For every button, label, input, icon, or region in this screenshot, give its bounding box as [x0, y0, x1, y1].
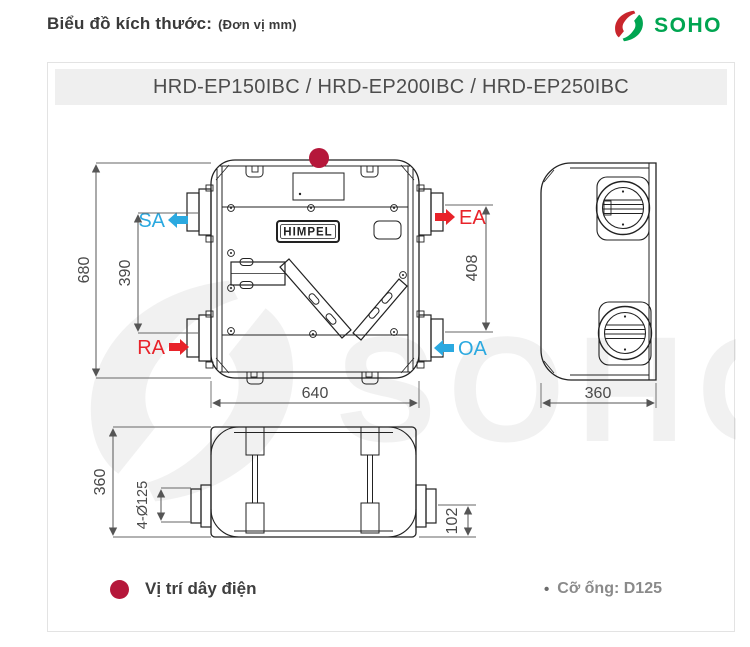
dim-depth-side-label: 360: [585, 385, 612, 402]
page-title-unit: (Đơn vị mm): [218, 17, 297, 32]
drawing-panel: HRD-EP150IBC / HRD-EP200IBC / HRD-EP250I…: [47, 62, 735, 632]
dim-bottom-offset-102: 102: [419, 505, 476, 537]
ra-arrow-icon: [169, 339, 189, 355]
legend-pipe: • Cỡ ống: D125: [544, 580, 662, 598]
dimension-sheet: { "page": { "title": "Biểu đồ kích thước…: [0, 0, 750, 647]
technical-drawing: HIMPEL SA EA RA OA: [48, 103, 736, 633]
front-view: HIMPEL: [187, 160, 443, 384]
duct-ra: [187, 311, 213, 368]
top-bar: Biểu đồ kích thước:(Đơn vị mm) SOHO: [0, 0, 750, 56]
oa-label: OA: [458, 338, 488, 360]
side-port-bottom: [599, 302, 652, 365]
ea-arrow-icon: [435, 209, 455, 225]
dim-right-span-label: 408: [464, 255, 481, 282]
ra-label: RA: [137, 337, 165, 359]
sa-arrow-icon: [168, 212, 188, 228]
dim-depth-side-360: 360: [541, 383, 656, 408]
side-port-top: [597, 177, 650, 240]
dim-duct-holes-label: 4-Ø125: [135, 481, 151, 529]
dim-depth-bottom-360: 360: [92, 427, 211, 537]
model-title-band: HRD-EP150IBC / HRD-EP200IBC / HRD-EP250I…: [55, 69, 727, 105]
bottom-ducts: [191, 485, 436, 527]
dim-bottom-offset-label: 102: [444, 508, 461, 535]
bottom-view: [191, 427, 436, 537]
dim-width-640: 640: [211, 381, 419, 408]
dim-duct-holes: 4-Ø125: [135, 481, 191, 529]
duct-sa: [187, 185, 213, 242]
ea-label: EA: [459, 207, 486, 229]
legend-wire: Vị trí dây điện: [110, 579, 256, 599]
dim-height-label: 680: [76, 257, 93, 284]
oa-arrow-icon: [434, 340, 454, 356]
wire-legend-dot: [110, 580, 129, 599]
name-plate: [374, 221, 401, 239]
brand-name: SOHO: [654, 14, 722, 38]
wire-legend-label: Vị trí dây điện: [145, 579, 256, 599]
brand-logo: SOHO: [610, 6, 722, 46]
legend: Vị trí dây điện • Cỡ ống: D125: [110, 573, 662, 605]
himpel-logo-text: HIMPEL: [283, 227, 332, 239]
duct-oa: [417, 311, 443, 368]
page-title: Biểu đồ kích thước:(Đơn vị mm): [47, 14, 297, 34]
junction-box: [293, 173, 344, 200]
hanger-brackets: [246, 427, 379, 533]
pipe-legend-label: Cỡ ống: D125: [557, 580, 662, 598]
heat-exchanger: [231, 259, 407, 341]
pipe-bullet-icon: •: [544, 581, 549, 598]
dim-depth-bottom-label: 360: [92, 469, 109, 496]
page-title-text: Biểu đồ kích thước:: [47, 14, 212, 33]
dim-left-span-label: 390: [117, 260, 134, 287]
dim-width-label: 640: [302, 385, 329, 402]
model-title: HRD-EP150IBC / HRD-EP200IBC / HRD-EP250I…: [153, 76, 629, 99]
soho-logo-icon: [610, 6, 648, 46]
himpel-logo: HIMPEL: [277, 221, 339, 242]
side-view: [541, 163, 656, 380]
wire-position-dot: [309, 148, 329, 168]
